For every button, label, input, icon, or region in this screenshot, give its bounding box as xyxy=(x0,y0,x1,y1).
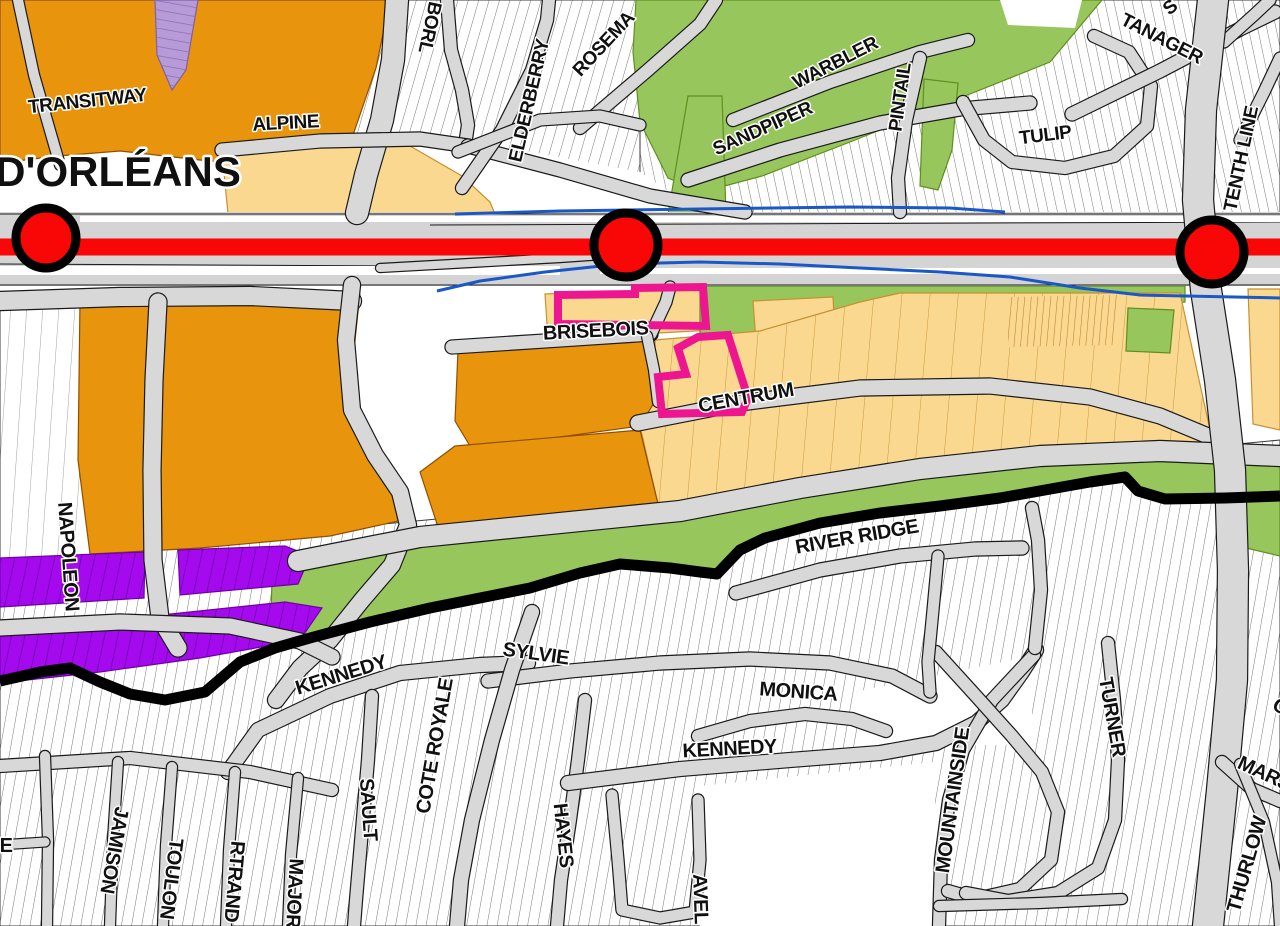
corridor-median-strip xyxy=(80,216,1280,222)
street-label-avel: AVEL xyxy=(688,873,712,924)
white-park-island xyxy=(1000,0,1082,28)
zoning-map-canvas: TRANSITWAYALPINED'ORLÉANSBORLELDERBERRYR… xyxy=(0,0,1280,926)
station-west xyxy=(16,208,76,268)
station-east xyxy=(1180,220,1244,284)
green-patch-east xyxy=(1126,308,1174,353)
street-label-major: MAJOR xyxy=(281,858,307,926)
station-centre xyxy=(594,213,658,277)
street-label-e: E xyxy=(0,835,13,857)
zoning-map: TRANSITWAYALPINED'ORLÉANSBORLELDERBERRYR… xyxy=(0,0,1280,926)
interchange-road-h xyxy=(0,296,352,301)
white-open-south-centre xyxy=(700,762,935,926)
tan-rowhouse-strip-pattern xyxy=(1008,295,1118,347)
orange-zone-centrum-north xyxy=(455,341,655,446)
street-label-d-orl-ans: D'ORLÉANS xyxy=(0,148,241,195)
street-label-sault: SAULT xyxy=(355,778,381,842)
street-label-alpine: ALPINE xyxy=(252,111,320,135)
tan-zone-tenthline-east xyxy=(1248,289,1280,430)
